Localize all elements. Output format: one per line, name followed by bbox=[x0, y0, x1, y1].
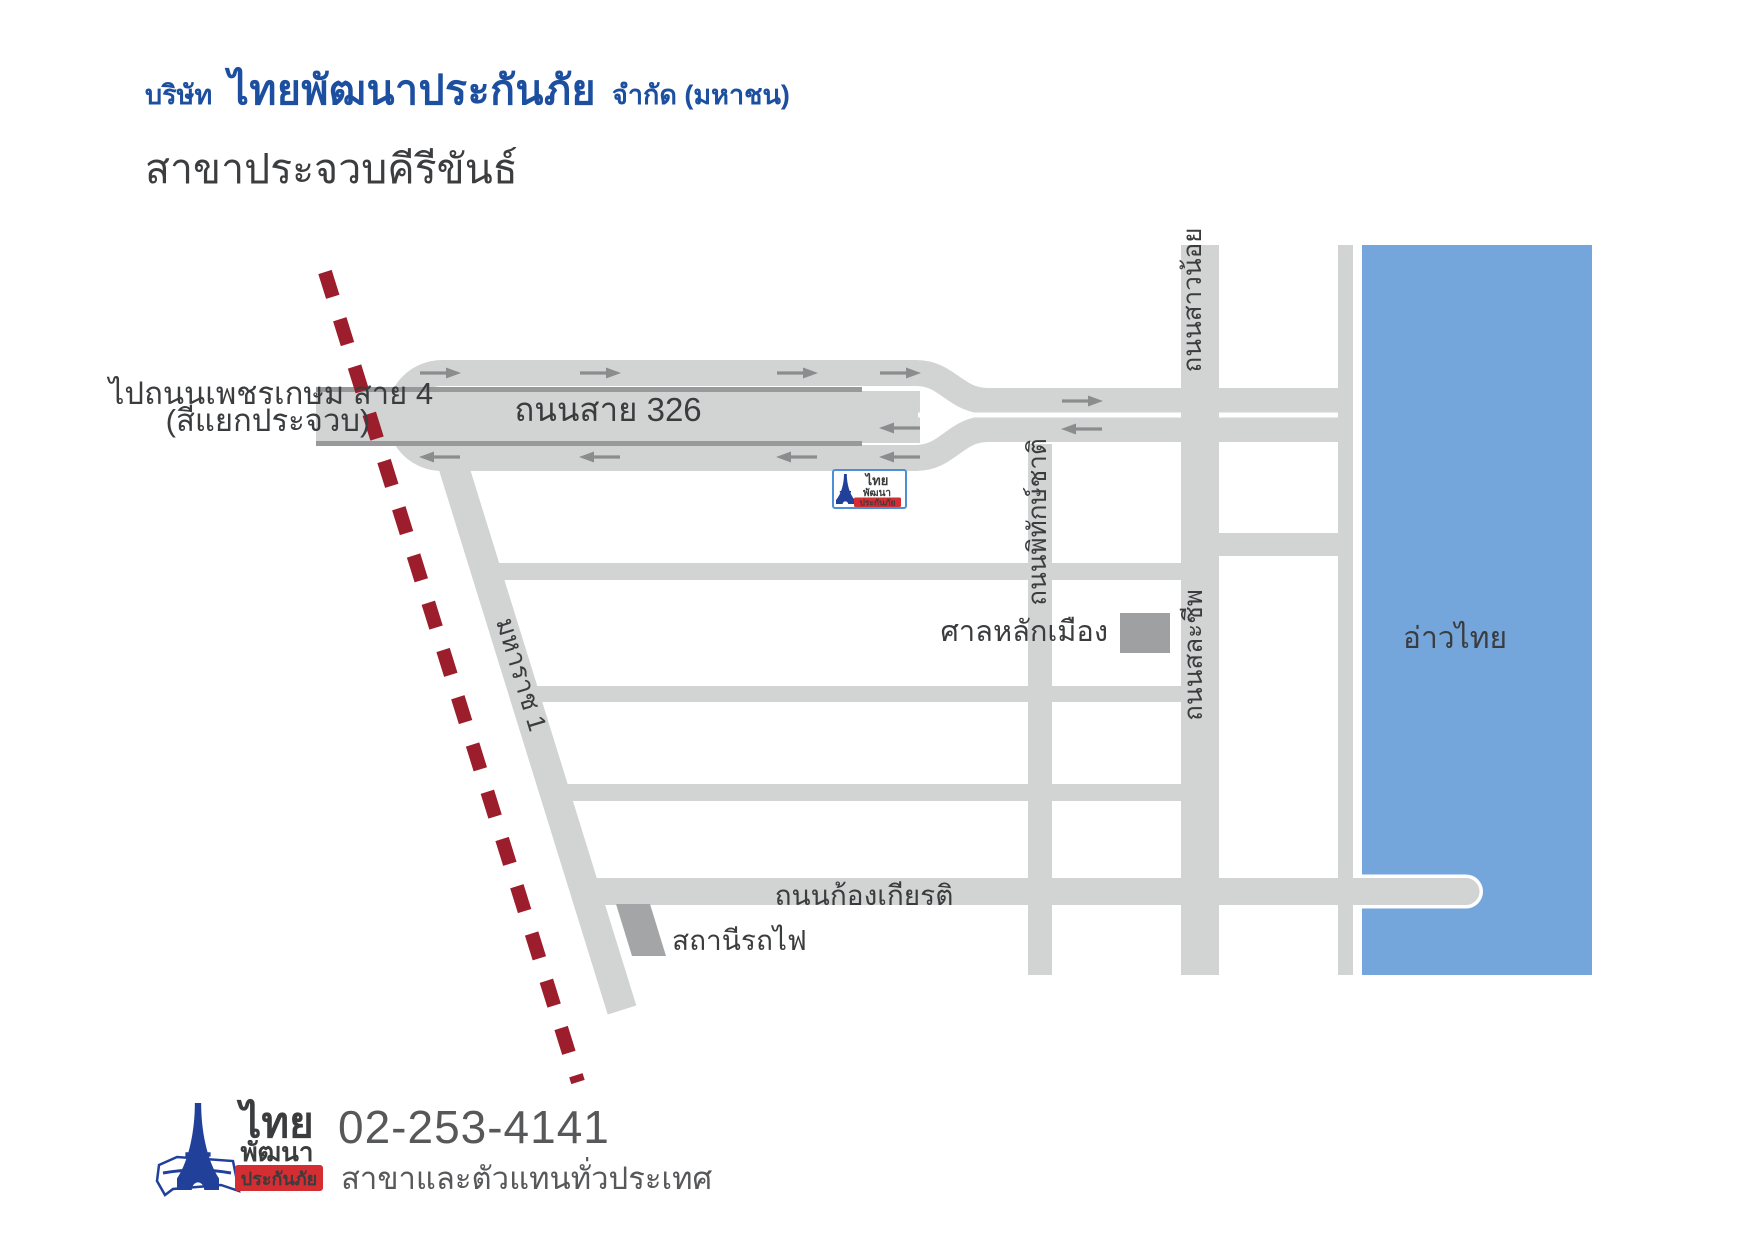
label-road-salacheep: ถนนสละชีพ bbox=[1178, 589, 1208, 721]
road-minor-2 bbox=[518, 686, 1219, 702]
marker-logo-line1: ไทย bbox=[864, 472, 889, 488]
label-road-kongkiat: ถนนก้องเกียรติ bbox=[775, 880, 954, 911]
gulf-of-thailand-sea bbox=[1362, 245, 1592, 975]
road-connector-east bbox=[1219, 533, 1345, 556]
label-road-maharat: มหาราช 1 bbox=[490, 614, 553, 734]
road-kongkiat bbox=[578, 878, 1466, 905]
logo-line3: ประกันภัย bbox=[241, 1169, 317, 1189]
page: บริษัท ไทยพัฒนาประกันภัย จำกัด (มหาชน) ส… bbox=[0, 0, 1754, 1240]
road-maharat bbox=[450, 455, 622, 1010]
city-pillar-building bbox=[1120, 613, 1170, 653]
road-minor-3 bbox=[548, 784, 1219, 801]
label-gulf-of-thailand: อ่าวไทย bbox=[1403, 620, 1507, 655]
marker-logo-line3: ประกันภัย bbox=[859, 498, 895, 508]
phone-number: 02-253-4141 bbox=[338, 1100, 610, 1154]
label-train-station: สถานีรถไฟ bbox=[672, 925, 807, 956]
eiffel-tower-icon bbox=[177, 1103, 219, 1190]
branch-map: ไปถนนเพชรเกษม สาย 4 (สี่แยกประจวบ) ถนนสา… bbox=[0, 0, 1754, 1240]
footer-tagline: สาขาและตัวแทนทั่วประเทศ bbox=[341, 1153, 712, 1203]
label-to-phetkasem-2: (สี่แยกประจวบ) bbox=[166, 399, 371, 438]
branch-location-marker: ไทย พัฒนา ประกันภัย bbox=[833, 470, 906, 508]
road-coastal bbox=[1338, 245, 1353, 975]
road-326-lane-divider bbox=[918, 413, 1352, 418]
road-326-median-bottom bbox=[316, 441, 862, 446]
label-route-326: ถนนสาย 326 bbox=[514, 391, 701, 428]
road-minor-1 bbox=[480, 563, 1219, 580]
label-city-pillar: ศาลหลักเมือง bbox=[940, 616, 1108, 648]
logo-line2: พัฒนา bbox=[241, 1137, 314, 1167]
road-kongkiat-end-cap bbox=[1453, 878, 1480, 905]
label-road-saonoi: ถนนสาวน้อย bbox=[1177, 228, 1207, 373]
train-station-building bbox=[616, 904, 666, 956]
label-road-pitakchat: ถนนพิทักษ์ชาติ bbox=[1022, 438, 1052, 606]
